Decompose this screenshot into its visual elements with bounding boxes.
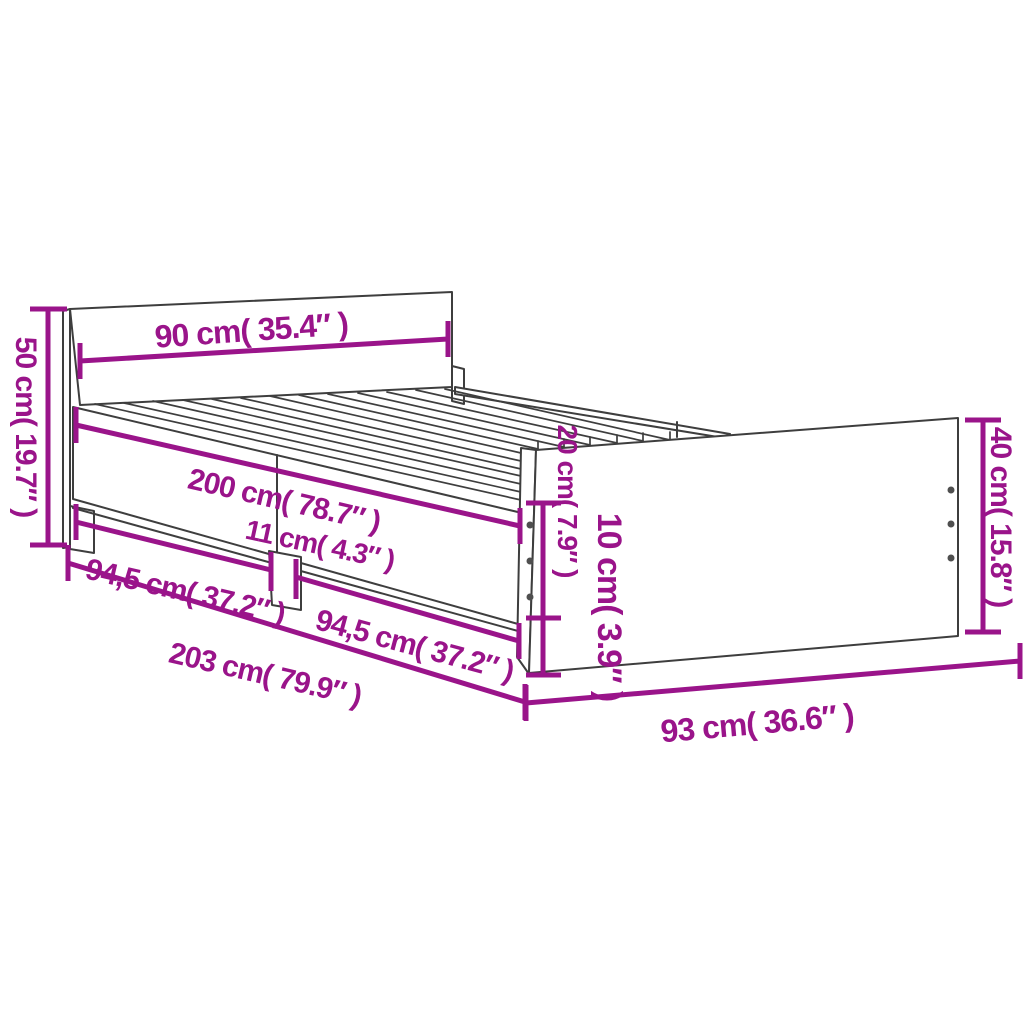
headboard-edge <box>63 309 70 548</box>
dim-footboard-height: 40 cm( 15.8″ ) <box>965 420 1017 632</box>
slat <box>299 395 538 449</box>
dimension-diagram: 50 cm( 19.7″ ) 90 cm( 35.4″ ) 200 cm( 78… <box>0 0 1024 1024</box>
screw-hole <box>948 487 955 494</box>
side-rail-height-label: 20 cm( 7.9″ ) <box>552 425 583 578</box>
bed-frame-drawing: 50 cm( 19.7″ ) 90 cm( 35.4″ ) 200 cm( 78… <box>0 0 1024 1024</box>
footboard-width-label: 93 cm( 36.6″ ) <box>659 697 855 750</box>
screw-hole <box>948 521 955 528</box>
total-length-label: 203 cm( 79.9″ ) <box>166 637 365 713</box>
headboard-height-label: 50 cm( 19.7″ ) <box>9 337 42 517</box>
screw-hole <box>527 522 534 529</box>
screw-hole <box>527 558 534 565</box>
screw-hole <box>948 555 955 562</box>
dim-headboard-height: 50 cm( 19.7″ ) <box>9 309 67 545</box>
footboard-height-label: 40 cm( 15.8″ ) <box>984 427 1017 607</box>
rail-bottom-height-label: 10 cm( 3.9″ ) <box>590 513 628 702</box>
screw-hole <box>527 594 534 601</box>
